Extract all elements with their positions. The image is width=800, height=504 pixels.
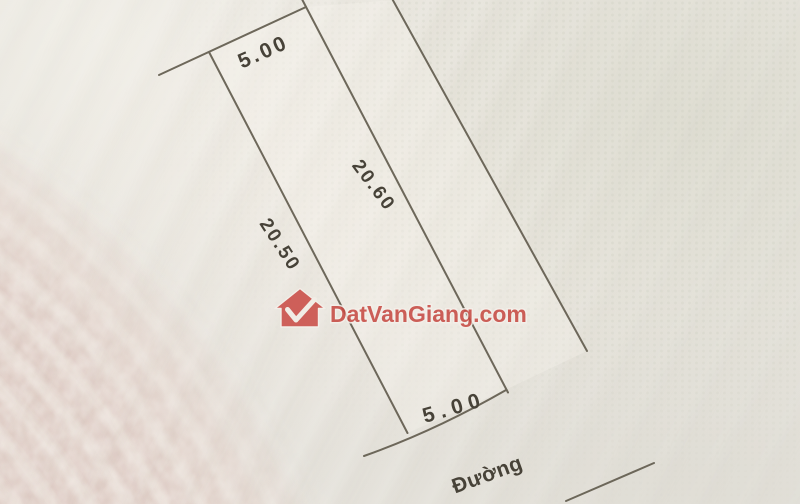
svg-text:20.50: 20.50 [255, 215, 304, 276]
svg-text:DatVanGiang.com: DatVanGiang.com [330, 301, 527, 327]
svg-text:Đường: Đường [449, 452, 526, 499]
